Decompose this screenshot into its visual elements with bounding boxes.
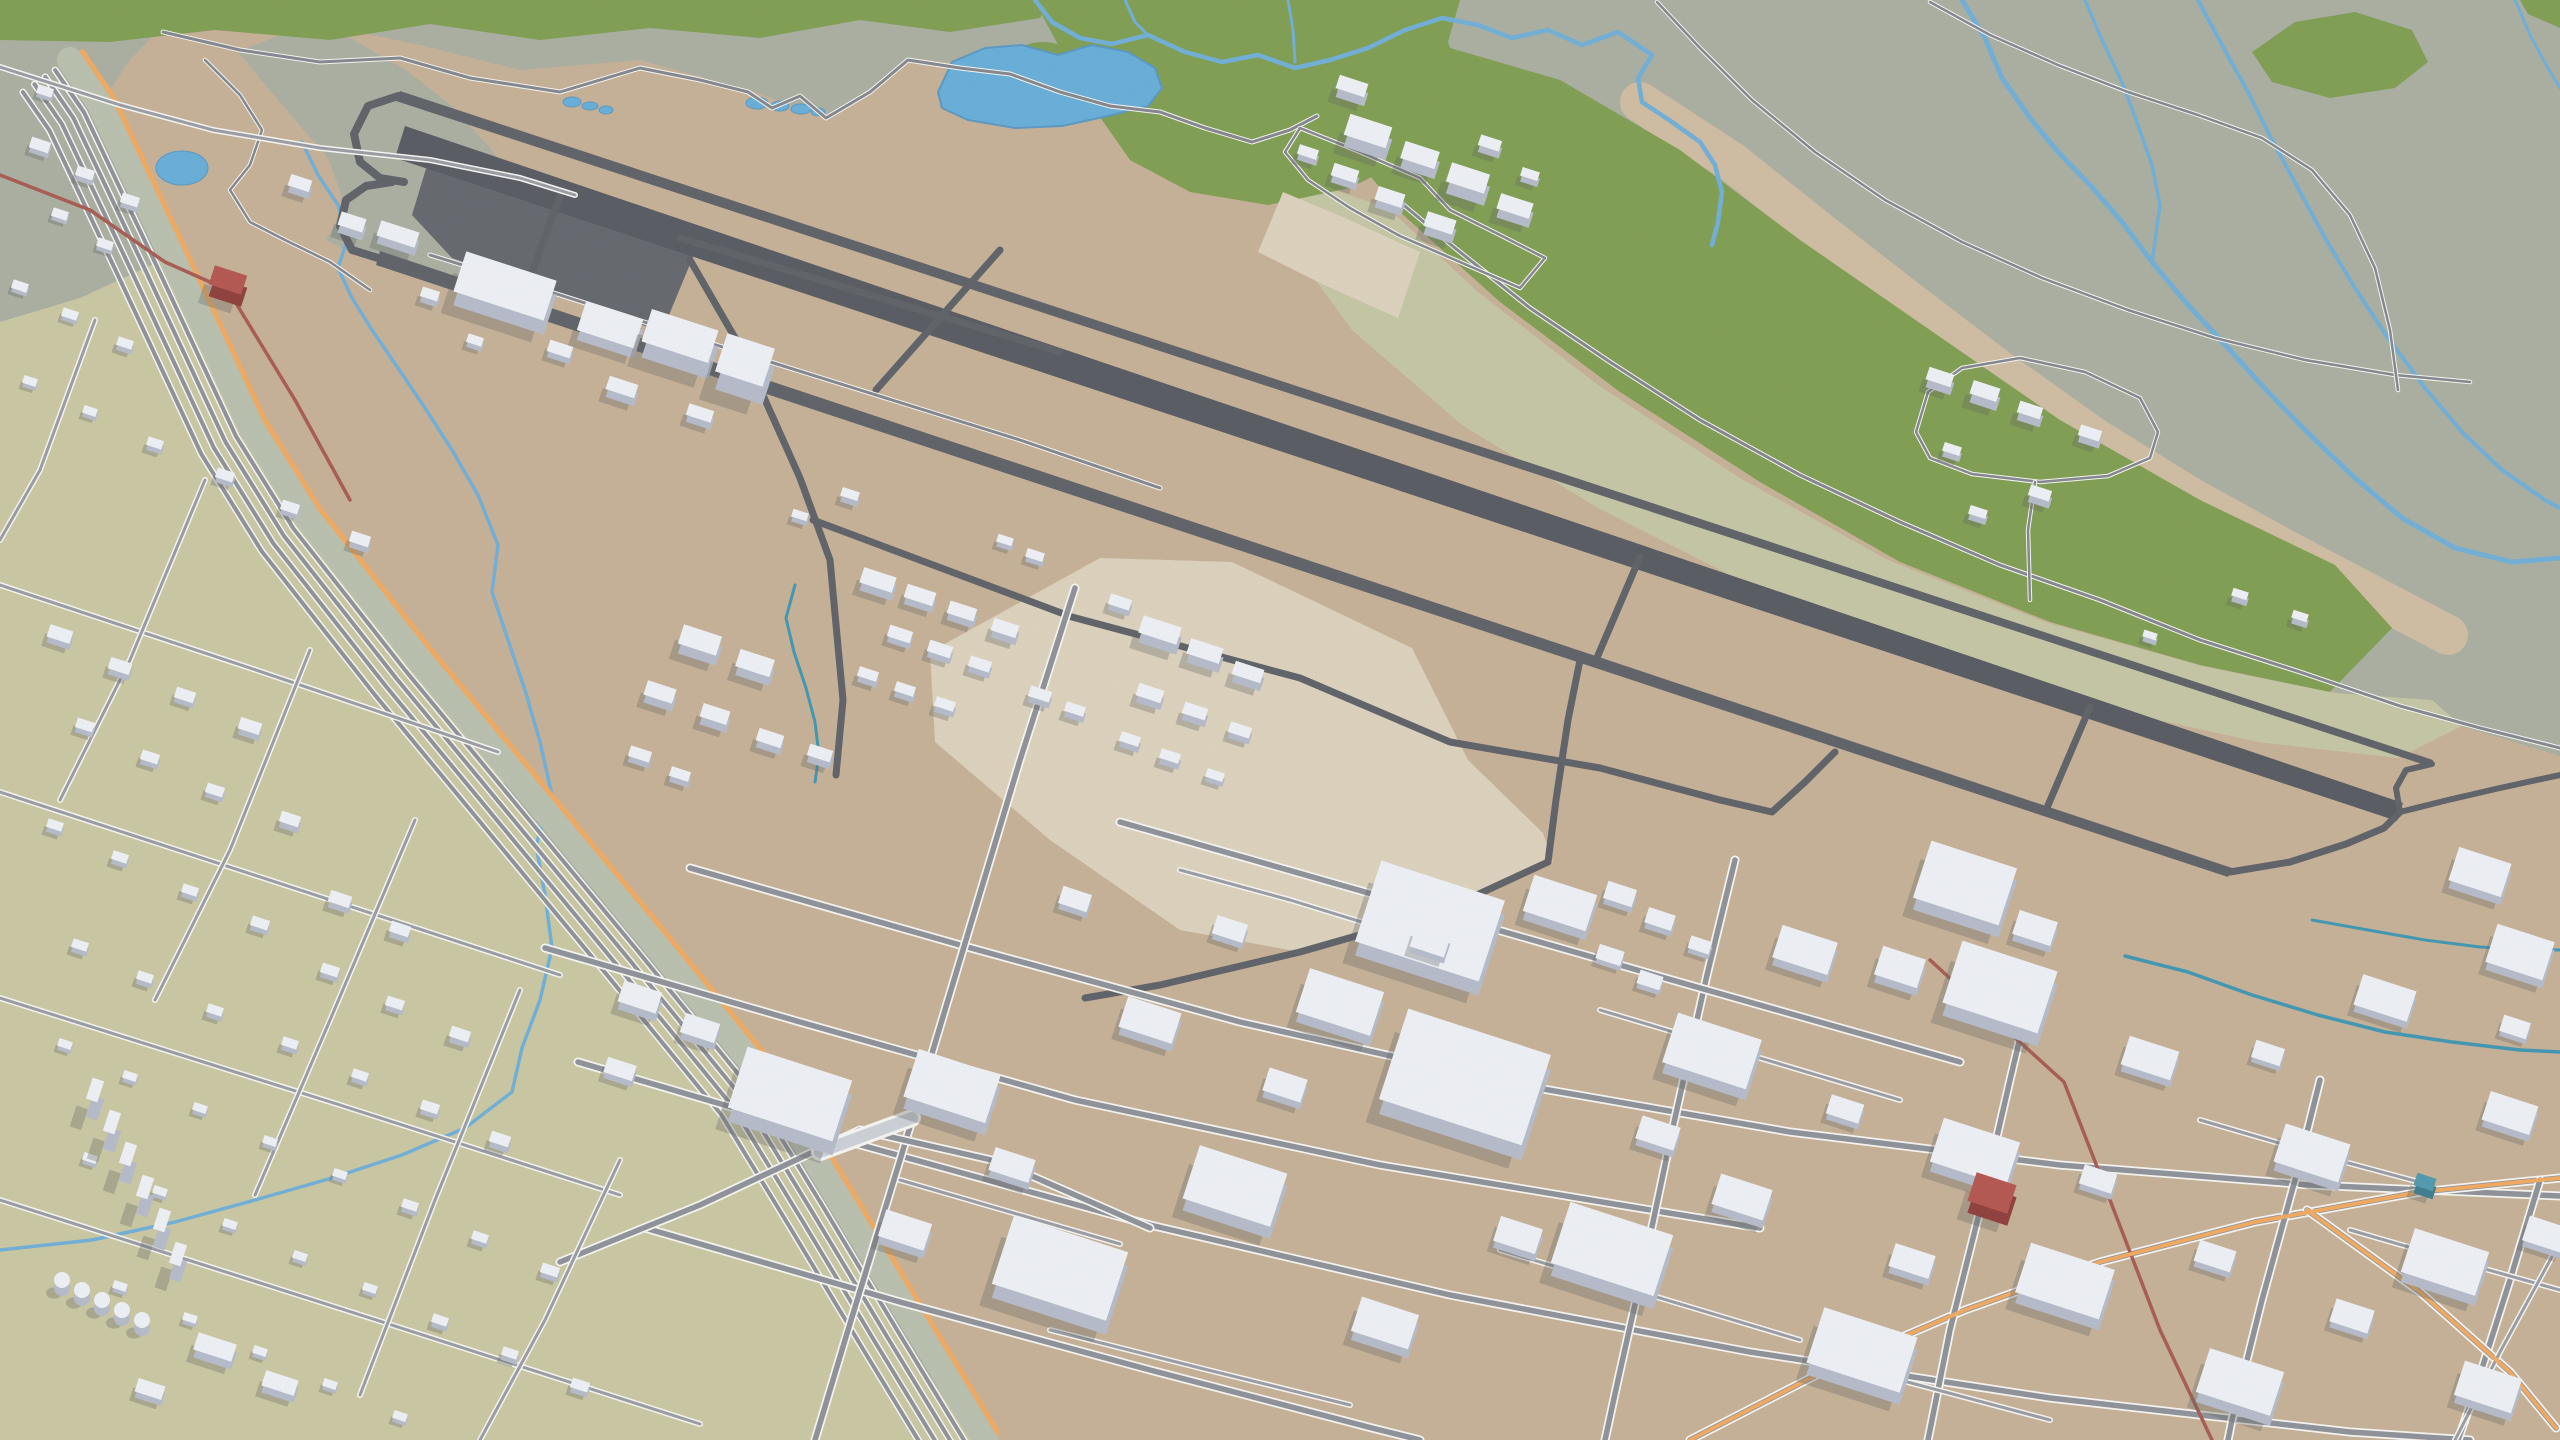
film-grain-overlay [0,0,2560,1440]
city-3d-map-viewport [0,0,2560,1440]
city-3d-render [0,0,2560,1440]
